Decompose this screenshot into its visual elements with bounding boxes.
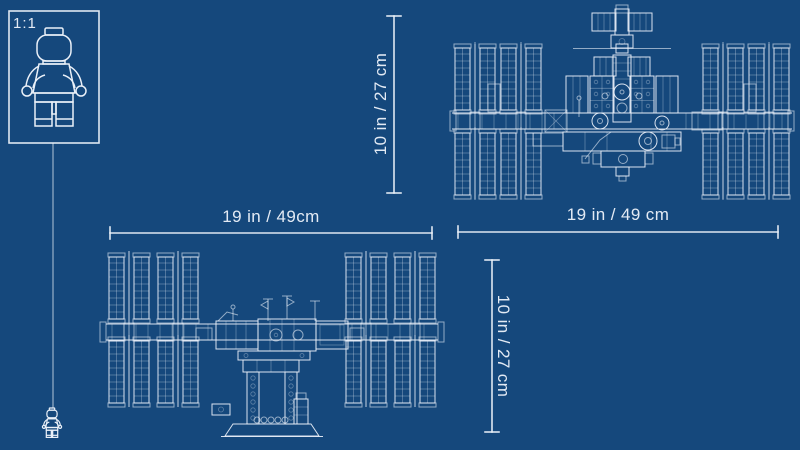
front-view-width-dimension-line (110, 227, 432, 239)
top-view-width-label: 19 in / 49 cm (538, 205, 698, 225)
top-view-height-label: 10 in / 27 cm (371, 34, 391, 174)
front-view-height-label: 10 in / 27 cm (493, 276, 513, 416)
mini-minifigure-icon (42, 408, 61, 437)
scale-label: 1:1 (13, 14, 53, 34)
solar-arrays-top-view (454, 42, 790, 199)
blueprint-artwork (0, 0, 800, 450)
front-view-width-label: 19 in / 49cm (191, 207, 351, 227)
center-modules-front-view (216, 296, 348, 360)
center-modules-top-view (488, 5, 756, 181)
display-stand (212, 360, 323, 437)
solar-arrays-front-view (108, 251, 436, 407)
iss-front-view-drawing (100, 251, 444, 437)
top-view-width-dimension-line (458, 226, 778, 238)
blueprint-page: 1:1 10 in / 27 cm 19 in / 49 cm 19 in / … (0, 0, 800, 450)
iss-top-view-drawing (450, 5, 794, 200)
minifigure-icon (22, 28, 86, 126)
